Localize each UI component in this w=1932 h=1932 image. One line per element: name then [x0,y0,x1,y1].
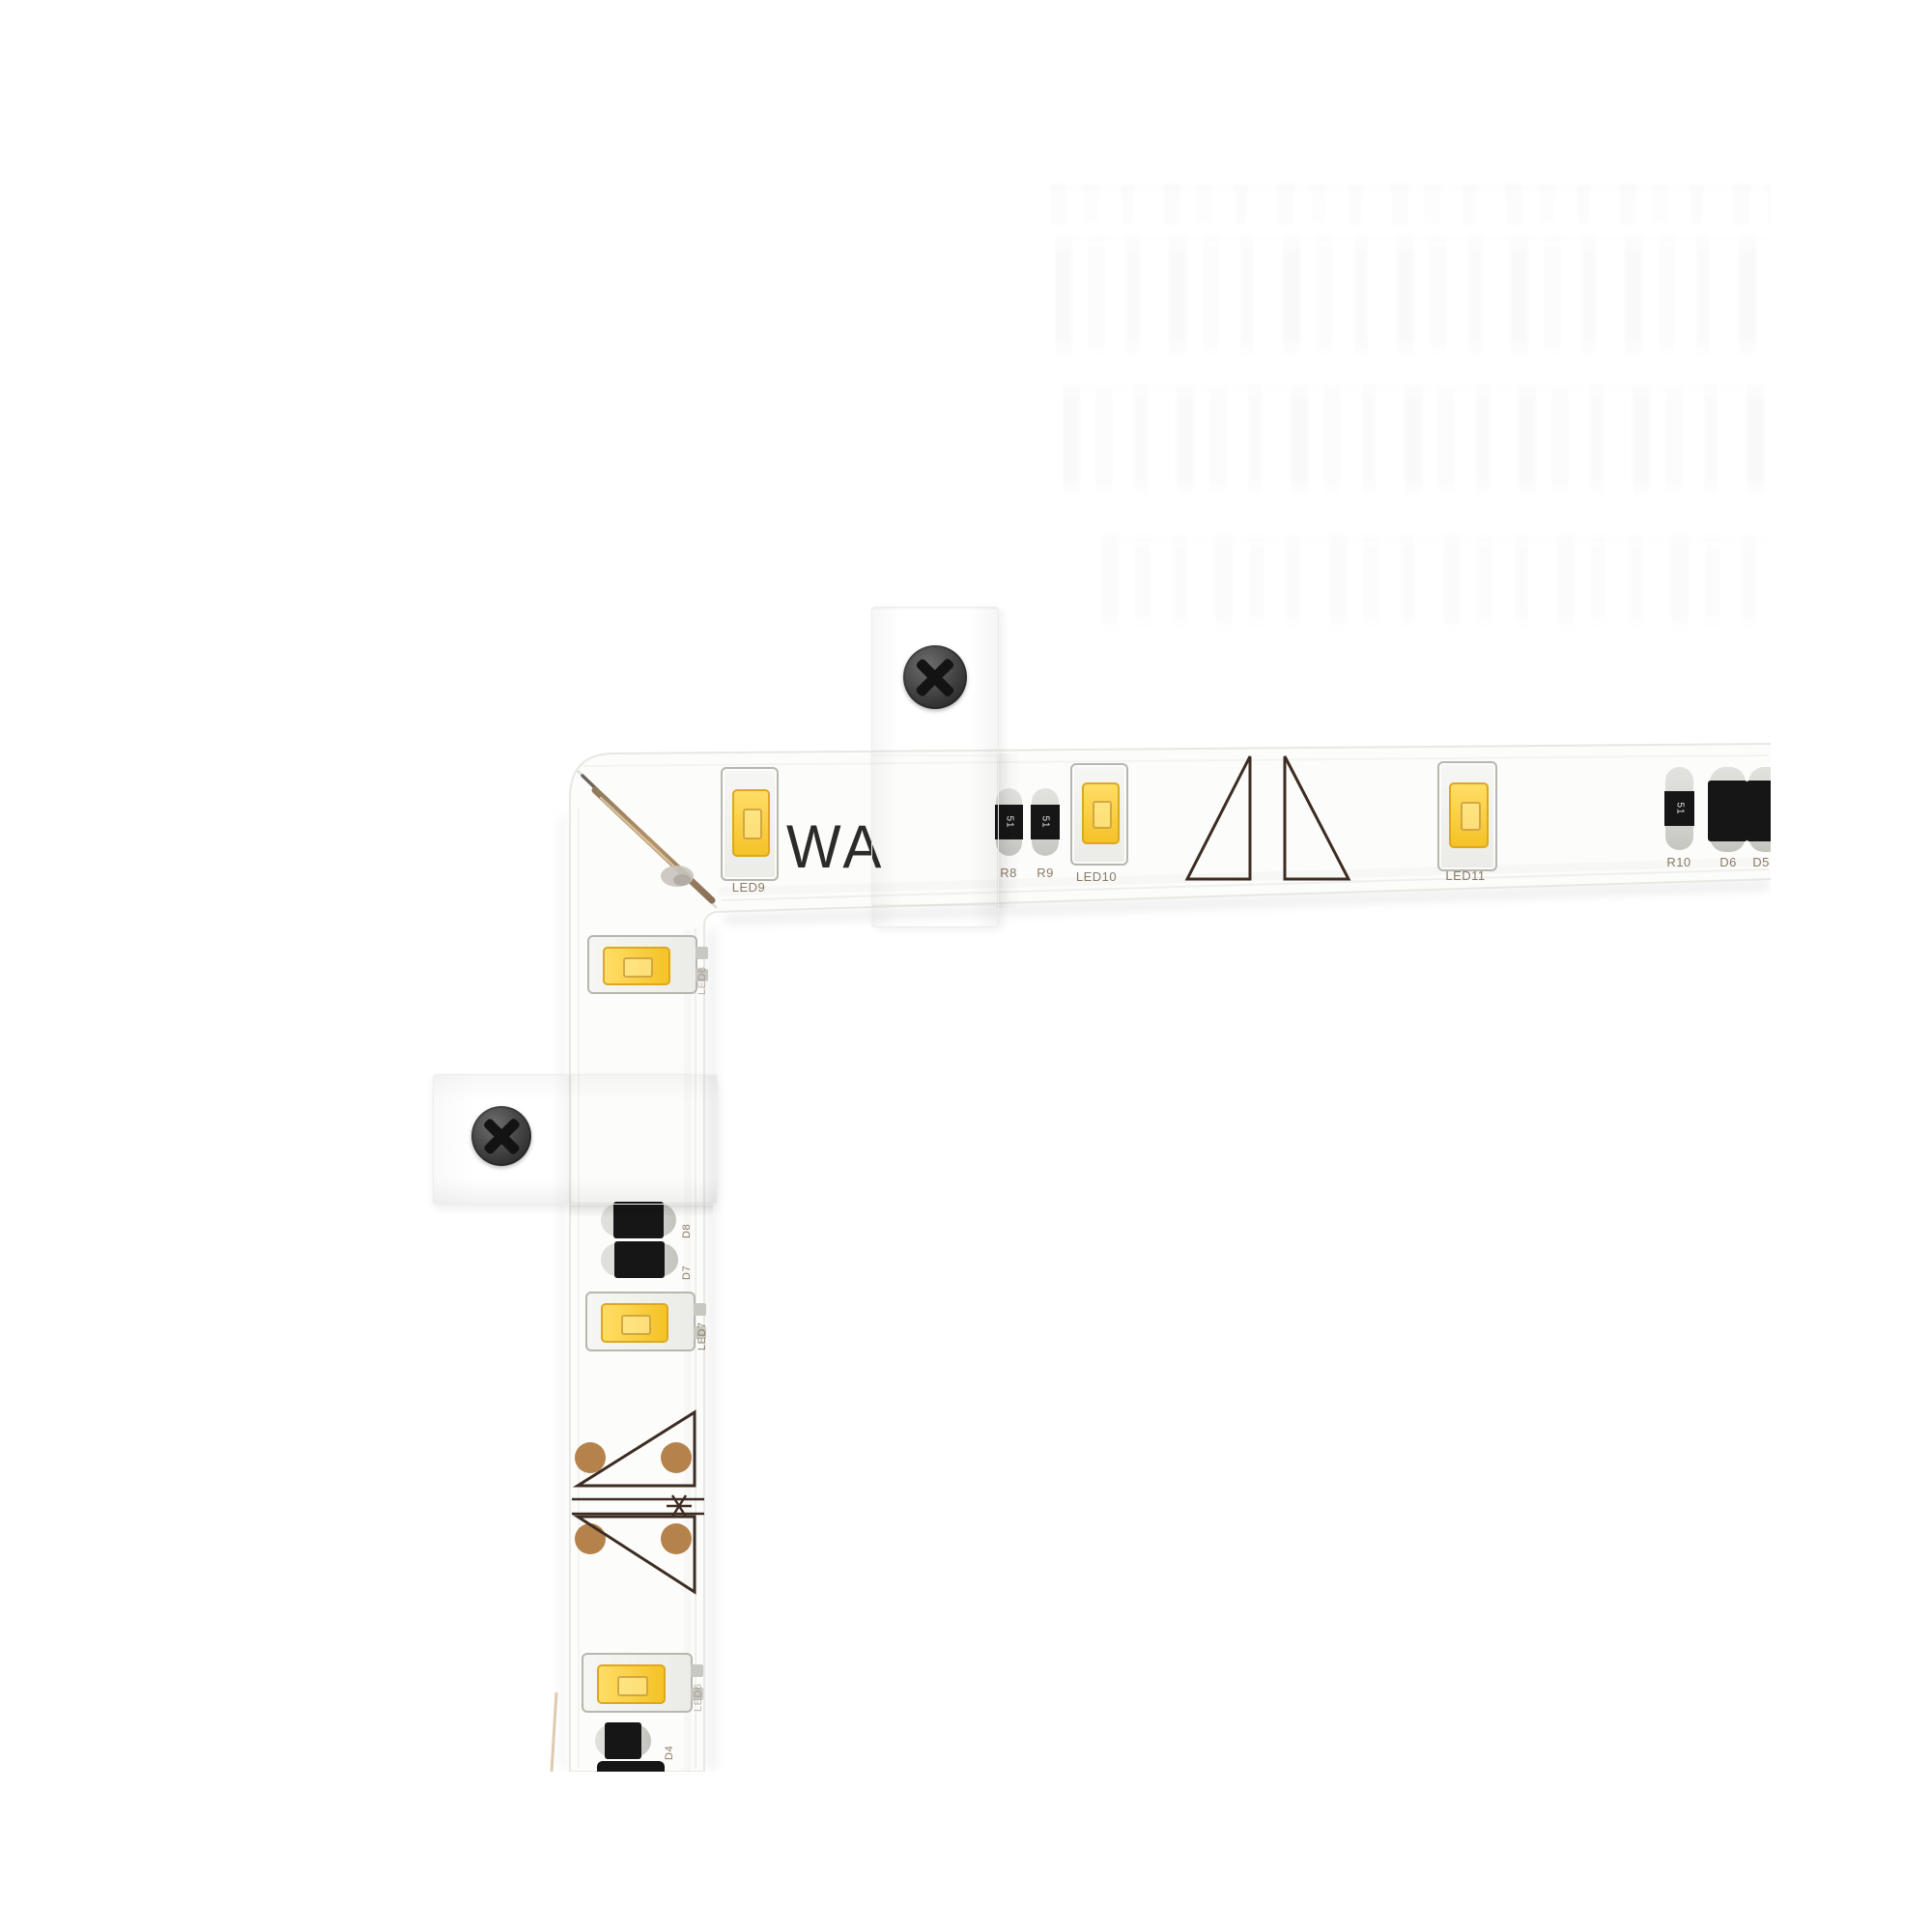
diode-chip [601,1204,676,1236]
led-tape-strip [0,0,1932,1932]
diode-label: D7 [682,1245,693,1280]
led-label: LED6 [694,1656,704,1712]
led-phosphor [603,947,670,985]
led-label: LED10 [1065,870,1128,883]
led-phosphor [1449,782,1489,848]
strip-silhouette [570,744,1772,1772]
led-phosphor [1082,782,1121,843]
led-die [623,957,654,978]
led-die [617,1676,648,1696]
led-phosphor [732,789,771,857]
resistor-chip: 51 [996,788,1022,856]
diode-label: D6 [1710,856,1747,868]
led-die [621,1315,652,1335]
led-die [1093,801,1112,829]
led-chip [587,935,697,994]
led-chip [1437,761,1497,871]
diode-chip [595,1724,651,1757]
diode-label: D4 [665,1727,675,1760]
led-chip [582,1653,693,1713]
led-tape-product-photo: WA LED9 51 R8 51 R9 LED10 LED11 51 R10 D… [0,0,1932,1932]
led-label: LED9 [719,881,779,894]
resistor-marking: 51 [1040,815,1050,828]
resistor-label: R10 [1658,856,1700,868]
led-phosphor [597,1664,666,1704]
photo-crop-right [1771,0,1932,1932]
diode-chip [1710,767,1746,852]
led-die [743,809,762,839]
diode-label: D8 [682,1204,693,1238]
resistor-chip: 51 [1665,767,1693,850]
stray-wire [552,1692,556,1772]
clip-screw [471,1106,531,1166]
clip-screw [903,645,967,709]
led-chip [721,767,779,881]
led-die [1461,802,1481,832]
resistor-marking: 51 [1005,815,1014,828]
diode-chip [601,1243,678,1276]
led-chip [1070,763,1128,866]
resistor-marking: 51 [1675,802,1685,814]
photo-crop-bottom [0,1772,1932,1932]
resistor-label: R9 [1024,867,1066,879]
led-chip [585,1292,696,1351]
led-label: LED7 [697,1294,708,1350]
led-label: LED11 [1434,869,1497,882]
strip-shadow [563,816,1770,1770]
resistor-chip: 51 [1032,788,1059,856]
led-phosphor [601,1303,668,1343]
led-label: LED8 [697,939,708,995]
